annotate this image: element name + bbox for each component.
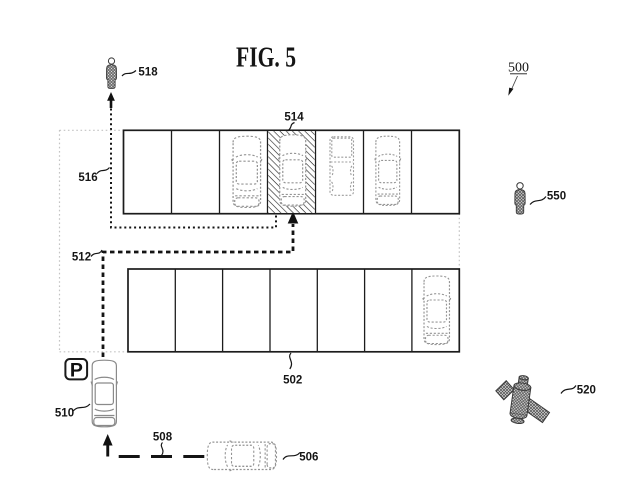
svg-text:512: 512 (72, 252, 91, 264)
svg-text:550: 550 (547, 191, 566, 203)
svg-text:502: 502 (283, 375, 302, 387)
svg-text:520: 520 (577, 385, 596, 397)
svg-text:FIG. 5: FIG. 5 (236, 43, 296, 74)
svg-text:516: 516 (78, 172, 97, 184)
svg-text:508: 508 (153, 432, 173, 444)
svg-text:506: 506 (299, 452, 318, 464)
svg-text:500: 500 (508, 61, 529, 76)
svg-text:P: P (70, 360, 83, 382)
svg-text:514: 514 (284, 112, 304, 124)
svg-text:518: 518 (138, 67, 158, 79)
svg-text:510: 510 (55, 408, 74, 420)
